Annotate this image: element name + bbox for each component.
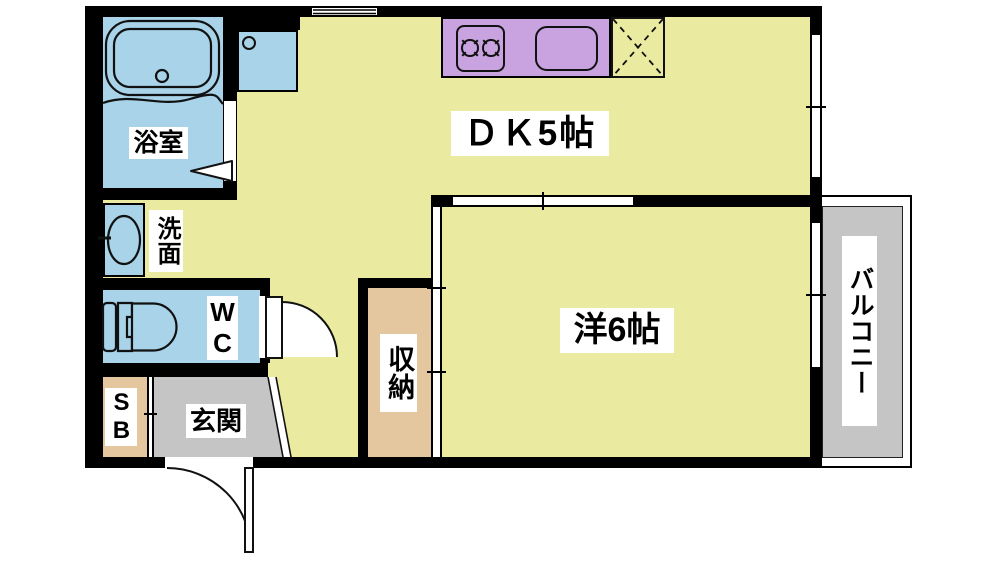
shoe-box-label: SB	[105, 388, 137, 446]
kitchen-counter	[441, 17, 611, 78]
sliding-door-room	[453, 195, 633, 207]
wall-partition-room	[633, 195, 810, 207]
entrance-door-icon	[167, 468, 253, 552]
window-dk	[810, 35, 822, 177]
sliding-door-closet	[431, 207, 442, 457]
wall-bathroom-bottom	[85, 188, 237, 200]
balcony-label: バルコニー	[842, 236, 877, 426]
wall-wc-top	[85, 278, 270, 290]
window-room	[810, 223, 822, 367]
wall-right-lower	[810, 367, 822, 468]
wall-laundry-header	[223, 17, 300, 30]
washing-machine-space	[237, 30, 298, 92]
entrance-opening	[165, 457, 253, 468]
floor-plan: 浴室 洗面 WC SB 玄関 収納 ＤＫ5帖 洋6帖 バルコニー	[0, 0, 1000, 562]
wall-storage-left	[358, 278, 368, 457]
washbasin-counter	[103, 203, 145, 277]
wc-label: WC	[207, 296, 238, 360]
window-top	[312, 6, 377, 17]
storage-label: 収納	[380, 334, 417, 412]
dining-kitchen-label: ＤＫ5帖	[451, 111, 609, 156]
bathroom-door-gap	[224, 101, 236, 181]
shoe-box-divider	[147, 377, 154, 457]
western-room-label: 洋6帖	[560, 308, 674, 353]
wall-storage-top	[358, 278, 433, 288]
washroom-label: 洗面	[149, 210, 183, 272]
refrigerator-space	[611, 17, 665, 78]
wall-right-middle	[810, 177, 822, 223]
bathroom-label: 浴室	[129, 127, 188, 159]
entrance-label: 玄関	[186, 404, 246, 438]
room-bathroom	[103, 17, 223, 188]
wall-wc-bottom	[85, 363, 268, 377]
wall-right-upper	[810, 6, 822, 35]
wall-top	[85, 6, 822, 17]
wall-partition-cap	[431, 195, 453, 207]
wall-left	[85, 6, 103, 468]
wall-wc-right	[260, 278, 270, 363]
